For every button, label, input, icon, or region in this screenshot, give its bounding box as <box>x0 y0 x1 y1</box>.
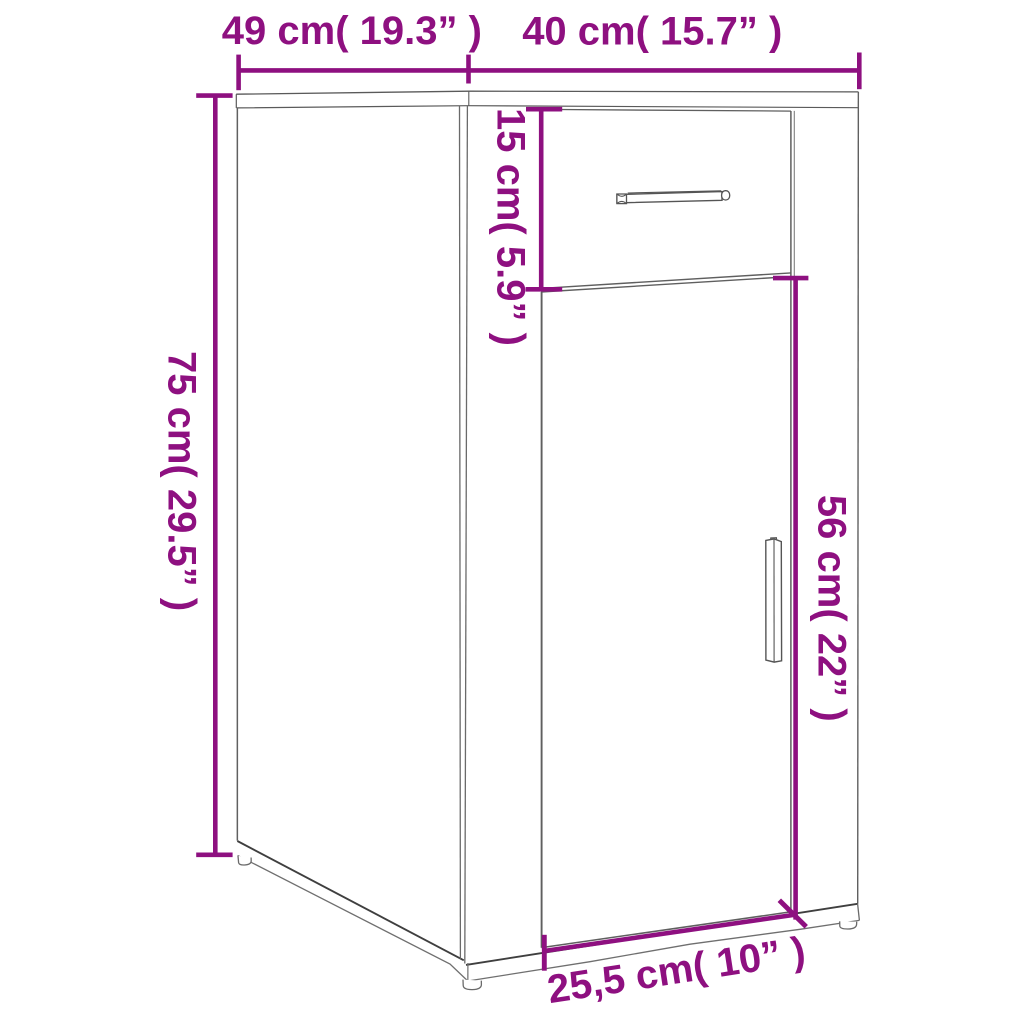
svg-text:56 cm( 22” ): 56 cm( 22” ) <box>809 495 853 722</box>
svg-text:49 cm( 19.3” ): 49 cm( 19.3” ) <box>222 9 482 53</box>
svg-text:15 cm( 5.9” ): 15 cm( 5.9” ) <box>489 108 533 346</box>
svg-text:40 cm( 15.7” ): 40 cm( 15.7” ) <box>522 10 782 54</box>
svg-text:75 cm( 29.5” ): 75 cm( 29.5” ) <box>160 351 204 611</box>
